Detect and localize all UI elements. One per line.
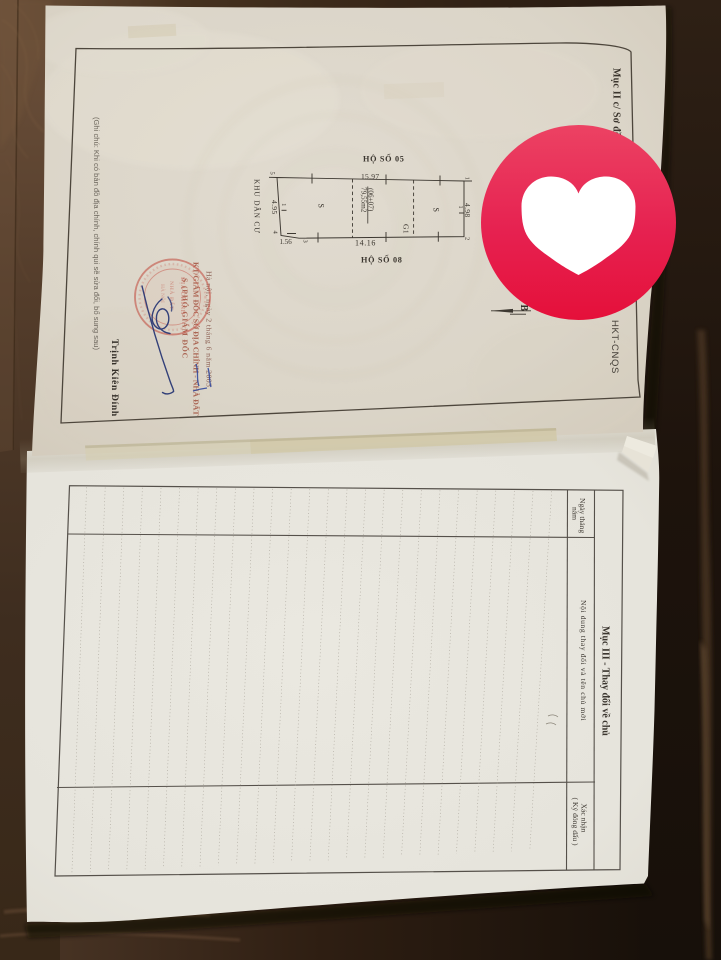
svg-text:G1: G1 xyxy=(402,224,411,234)
svg-text:HỘ SỐ 05: HỘ SỐ 05 xyxy=(363,154,405,164)
svg-text:S: S xyxy=(432,208,441,212)
svg-text:14.16: 14.16 xyxy=(355,238,376,247)
svg-text:Mục III - Thay đổi về chủ: Mục III - Thay đổi về chủ xyxy=(600,626,611,736)
svg-text:1: 1 xyxy=(464,177,471,180)
svg-text:( Ký đóng dấu ): ( Ký đóng dấu ) xyxy=(571,798,580,847)
svg-text:Nội dung thay đổi và tên chủ m: Nội dung thay đổi và tên chủ mới xyxy=(579,600,588,721)
svg-text:HỘ SỐ 08: HỘ SỐ 08 xyxy=(361,255,403,265)
svg-text:3: 3 xyxy=(302,240,309,243)
svg-text:ĐỊA CHÍNH: ĐỊA CHÍNH xyxy=(179,277,187,315)
svg-text:79,55m2: 79,55m2 xyxy=(360,187,368,213)
svg-text:B: B xyxy=(518,305,529,312)
svg-text:S: S xyxy=(317,204,326,208)
svg-text:2: 2 xyxy=(464,237,471,240)
svg-text:15.97: 15.97 xyxy=(361,172,379,181)
svg-text:1.56: 1.56 xyxy=(280,238,293,246)
svg-text:1: 1 xyxy=(280,203,286,206)
svg-text:Trịnh Kiên Đính: Trịnh Kiên Đính xyxy=(109,339,119,417)
svg-text:4.95: 4.95 xyxy=(270,200,279,215)
svg-text:(Ghi chú: Khi có bản đồ địa ch: (Ghi chú: Khi có bản đồ địa chính, chính… xyxy=(92,117,101,351)
svg-text:4.98: 4.98 xyxy=(463,203,472,218)
svg-text:5: 5 xyxy=(268,172,275,175)
svg-text:KHU DÂN CƯ: KHU DÂN CƯ xyxy=(253,179,263,234)
svg-text:năm: năm xyxy=(571,507,580,520)
svg-text:HKT-CNQS: HKT-CNQS xyxy=(609,320,620,374)
svg-text:1: 1 xyxy=(457,206,463,209)
